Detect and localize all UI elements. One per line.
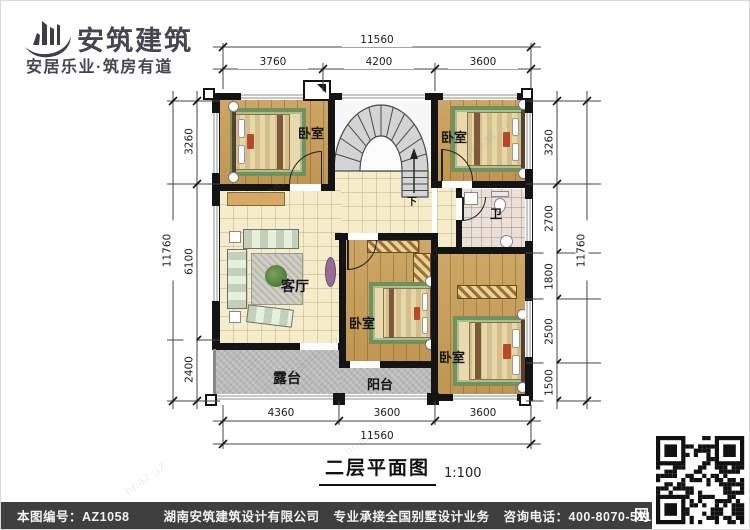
- terrace-parapet-left: [213, 349, 216, 398]
- footer-drawing-no: 本图编号：AZ1058: [17, 506, 129, 525]
- watermark: hnaz_jz: [122, 458, 169, 499]
- window-left-living: [212, 206, 219, 301]
- corner-post-bl: [205, 394, 217, 406]
- drawing-title-block: 二层平面图 1:100: [319, 453, 481, 486]
- window-left-tl: [212, 113, 219, 173]
- qr-code: [652, 431, 749, 529]
- bed-middle: [369, 282, 435, 344]
- floor-plan-page: 安筑建筑 安居乐业·筑房有道: [0, 0, 750, 530]
- pilaster-bottom-1: [333, 393, 345, 405]
- corridor-floor: [437, 188, 457, 248]
- dim-bottom-1: 4360: [246, 407, 316, 420]
- corner-post-tl: [203, 88, 215, 100]
- drawing-title: 二层平面图: [319, 453, 436, 486]
- parapet-bottom: [215, 394, 433, 401]
- brand-tagline: 安居乐业·筑房有道: [26, 53, 173, 77]
- window-right-br: [525, 301, 532, 357]
- dim-bottom-2: 3600: [352, 407, 422, 420]
- dim-top-1: 3760: [238, 56, 308, 69]
- dim-bottom-3: 3600: [448, 407, 518, 420]
- wall-bath-bottom: [431, 247, 533, 254]
- label-bedroom-bottomright: 卧室: [439, 347, 465, 366]
- dim-left-3: 2400: [184, 340, 197, 400]
- dim-left-2: 6100: [184, 232, 197, 292]
- dim-top-2: 4200: [344, 56, 414, 69]
- window-top-stair: [342, 93, 425, 100]
- dim-right-2: 2700: [544, 189, 557, 249]
- label-bedroom-topright: 卧室: [441, 127, 467, 146]
- staircase: [331, 97, 435, 203]
- toilet: [491, 191, 509, 197]
- dim-right-1: 3260: [544, 113, 557, 173]
- footer-phone: 咨询电话：400-8070-511: [504, 506, 652, 525]
- wall-stair-right: [431, 100, 438, 188]
- window-bottom-br: [453, 394, 517, 401]
- flue-mark: [317, 84, 326, 93]
- label-terrace: 露台: [273, 368, 301, 388]
- wall-stair-left: [328, 100, 335, 184]
- corner-post-tr: [521, 88, 533, 100]
- dim-left-1: 3260: [184, 112, 197, 172]
- window-right-bath: [525, 199, 532, 241]
- label-living: 客厅: [281, 276, 309, 296]
- corner-post-br: [519, 394, 531, 406]
- wardrobe-bottomright-bedroom: [457, 285, 517, 299]
- console-table: [325, 257, 336, 287]
- dim-right-5: 1500: [544, 353, 557, 413]
- footer-service: 专业承接全国别墅设计业务: [334, 506, 490, 525]
- label-stair-down: 下: [407, 193, 417, 208]
- label-bedroom-topleft: 卧室: [298, 123, 324, 142]
- label-bath: 卫: [490, 205, 502, 222]
- label-bedroom-middle: 卧室: [349, 313, 375, 332]
- dim-top-total: 11560: [342, 34, 412, 47]
- label-balcony: 阳台: [367, 374, 393, 393]
- window-top-tr: [443, 93, 517, 100]
- pilaster-bottom-2: [427, 393, 439, 405]
- dim-left-total: 11760: [162, 221, 175, 281]
- drawing-scale: 1:100: [444, 466, 481, 486]
- footer-company: 湖南安筑建筑设计有限公司: [163, 506, 319, 525]
- dim-right-3: 1800: [544, 247, 557, 307]
- dim-top-3: 3600: [448, 56, 518, 69]
- dim-right-total: 11760: [576, 221, 589, 281]
- web-badge: 网: [634, 504, 649, 525]
- window-right-tr: [525, 113, 532, 169]
